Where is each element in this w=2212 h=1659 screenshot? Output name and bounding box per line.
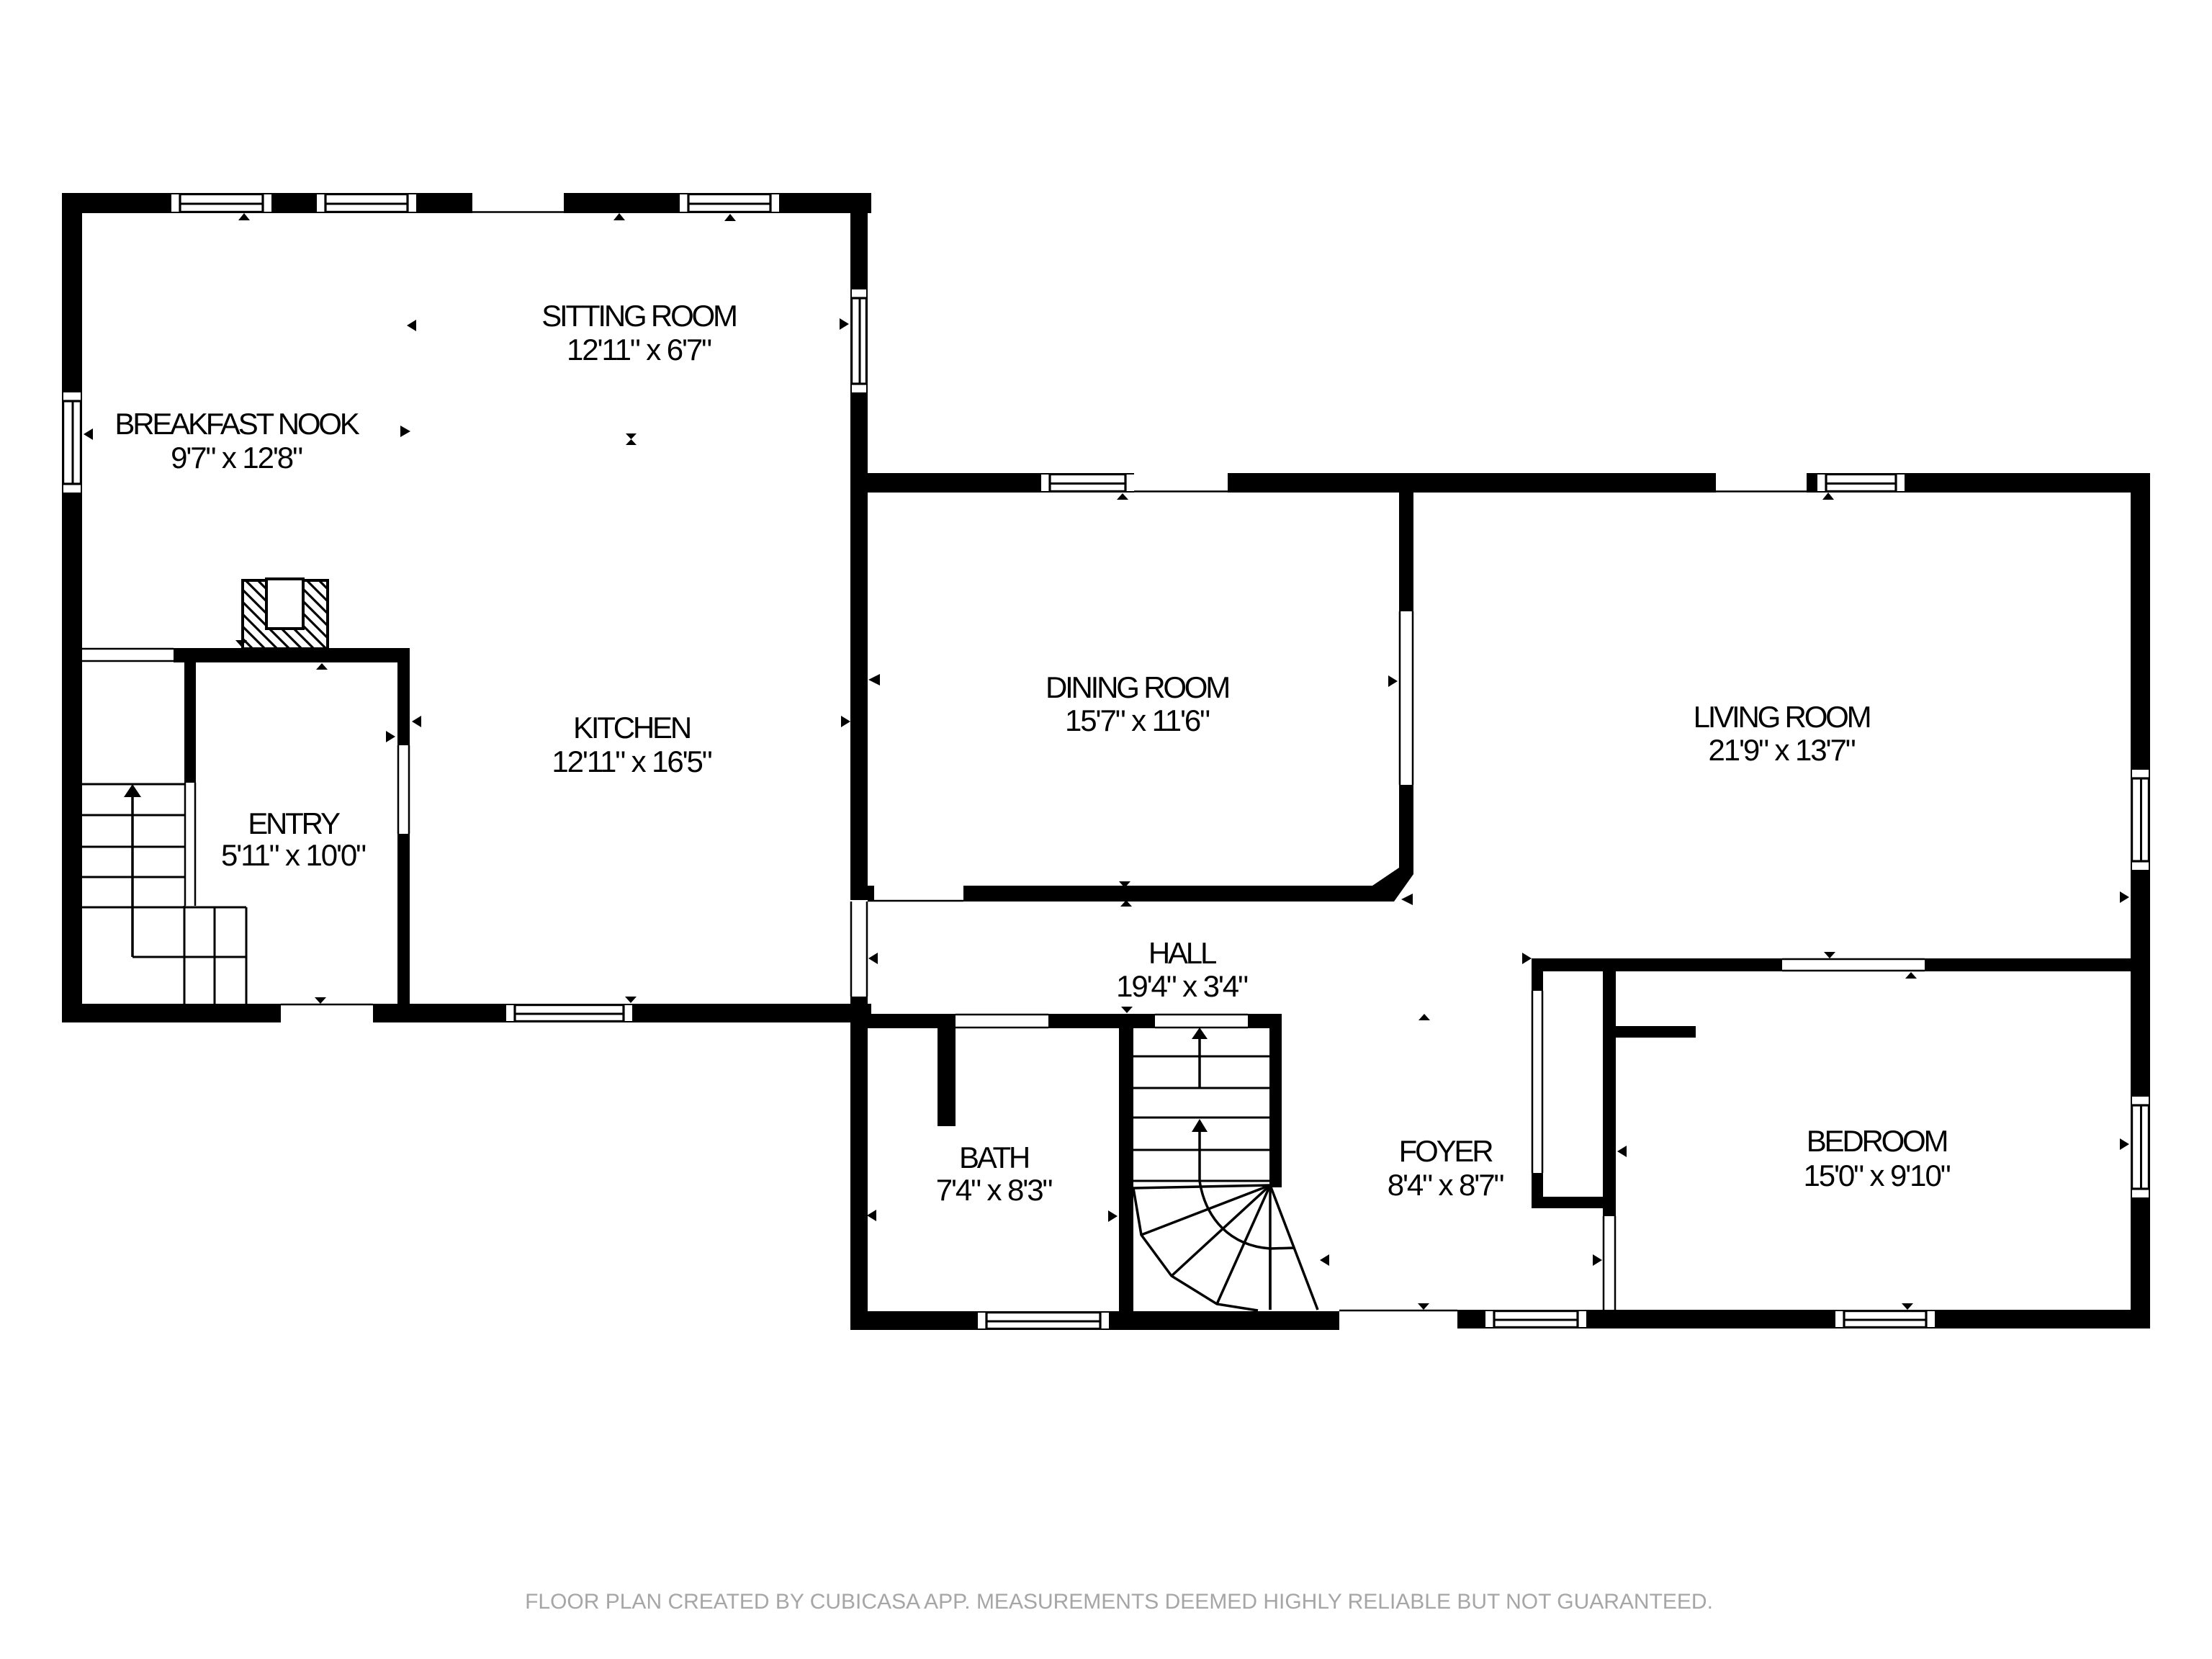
svg-text:SITTING ROOM: SITTING ROOM <box>541 299 736 333</box>
svg-text:BEDROOM: BEDROOM <box>1807 1124 1947 1158</box>
svg-text:DINING ROOM: DINING ROOM <box>1046 670 1228 704</box>
svg-text:HALL: HALL <box>1148 936 1216 970</box>
svg-text:BREAKFAST NOOK: BREAKFAST NOOK <box>114 407 359 441</box>
svg-text:15'0" x 9'10": 15'0" x 9'10" <box>1803 1159 1950 1192</box>
svg-text:7'4" x 8'3": 7'4" x 8'3" <box>936 1173 1053 1207</box>
svg-text:9'7" x 12'8": 9'7" x 12'8" <box>171 441 302 475</box>
svg-text:12'11" x 6'7": 12'11" x 6'7" <box>567 333 711 367</box>
svg-text:LIVING ROOM: LIVING ROOM <box>1694 700 1870 734</box>
svg-text:15'7" x 11'6": 15'7" x 11'6" <box>1065 703 1210 737</box>
svg-text:5'11" x 10'0": 5'11" x 10'0" <box>221 838 366 872</box>
svg-text:FLOOR PLAN CREATED BY CUBICASA: FLOOR PLAN CREATED BY CUBICASA APP. MEAS… <box>525 1590 1713 1614</box>
svg-text:19'4" x 3'4": 19'4" x 3'4" <box>1116 969 1248 1003</box>
svg-text:KITCHEN: KITCHEN <box>573 711 690 745</box>
svg-text:12'11" x 16'5": 12'11" x 16'5" <box>552 745 711 778</box>
svg-text:BATH: BATH <box>959 1141 1028 1174</box>
svg-text:ENTRY: ENTRY <box>248 806 341 840</box>
svg-text:FOYER: FOYER <box>1399 1134 1493 1168</box>
svg-text:8'4" x 8'7": 8'4" x 8'7" <box>1388 1168 1504 1202</box>
svg-text:21'9" x 13'7": 21'9" x 13'7" <box>1708 733 1855 767</box>
